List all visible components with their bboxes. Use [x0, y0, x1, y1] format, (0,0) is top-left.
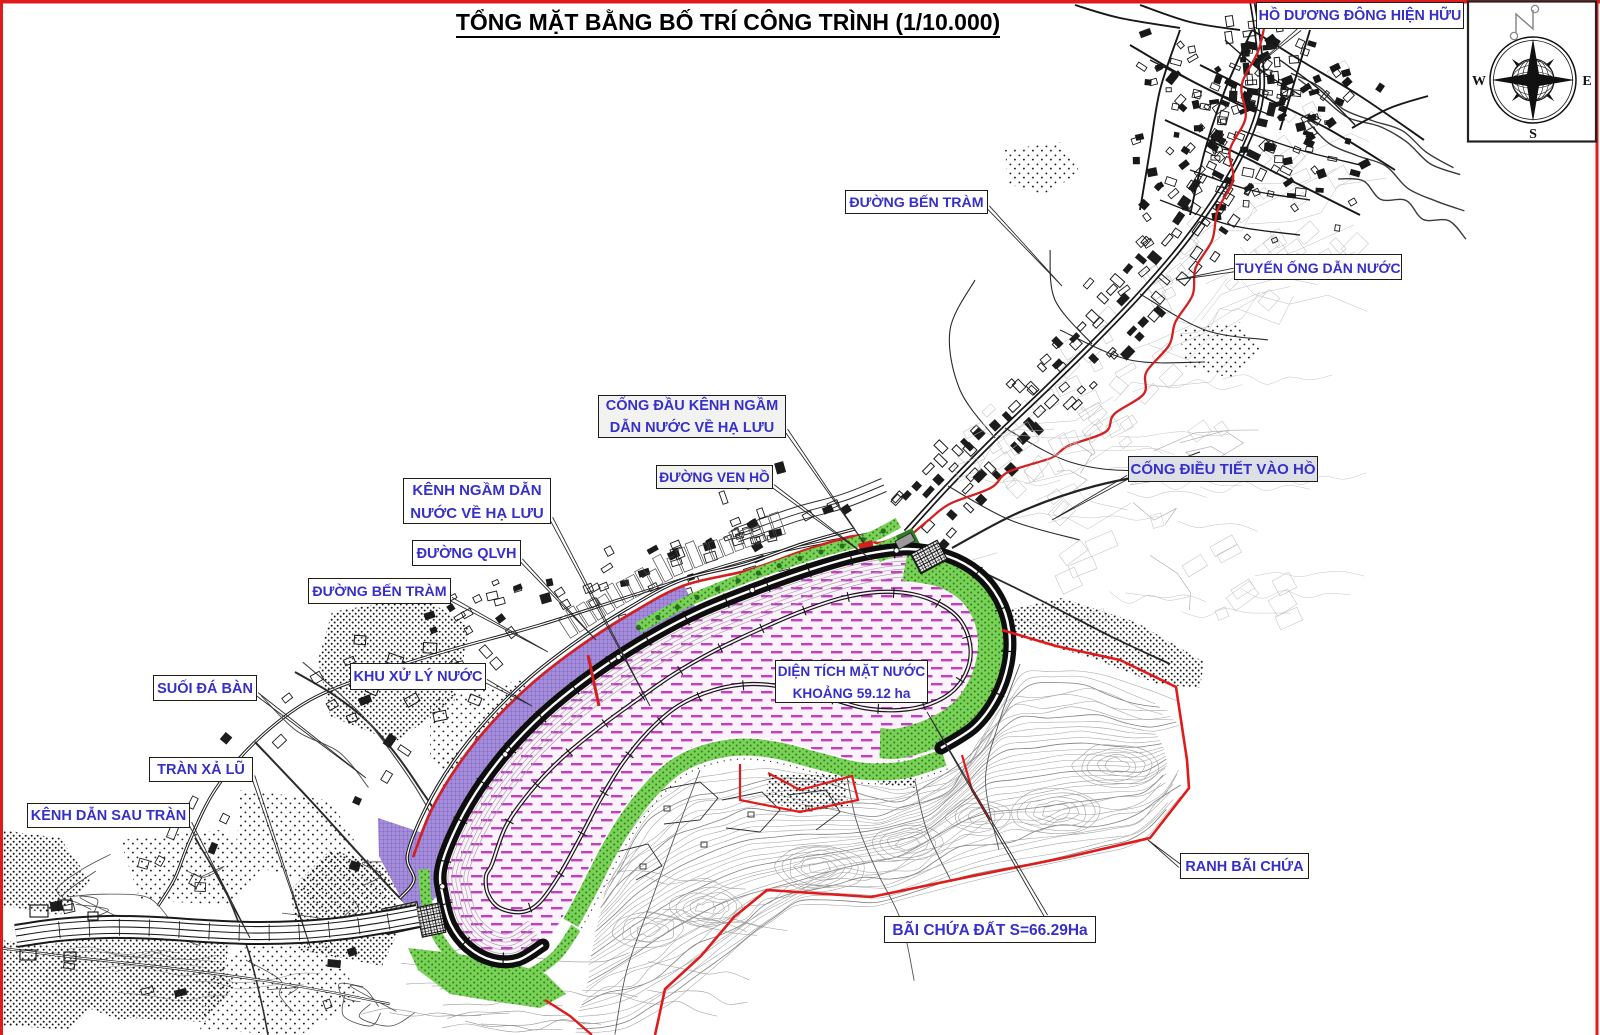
svg-text:E: E [1582, 74, 1591, 89]
svg-text:W: W [1472, 74, 1486, 89]
svg-text:S: S [1529, 127, 1537, 142]
